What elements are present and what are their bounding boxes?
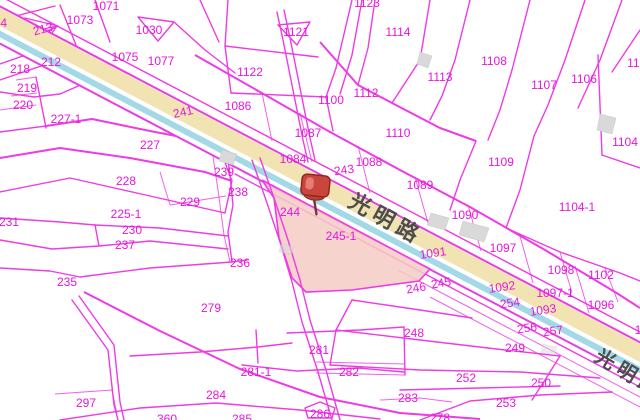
parcel-label-220: 220	[13, 98, 33, 112]
parcel-label-238: 238	[228, 185, 248, 199]
parcel-label-282: 282	[339, 365, 359, 379]
parcel-label-1088: 1088	[356, 155, 383, 169]
parcel-label-279: 279	[201, 301, 221, 315]
parcel-label-1104-1: 1104-1	[559, 200, 596, 214]
parcel-label-243: 243	[333, 162, 355, 179]
cadastral-map-svg: 光明路光明路 107110731030214213107510772122182…	[0, 0, 640, 420]
parcel-label-254: 254	[499, 295, 521, 312]
parcel-label-225-1: 225-1	[111, 207, 142, 221]
parcel-label-227: 227	[140, 138, 160, 152]
parcel-label-1075: 1075	[112, 50, 139, 64]
parcel-label-281: 281	[309, 343, 329, 357]
parcel-label-249: 249	[505, 341, 525, 355]
parcel-label-1113: 1113	[428, 70, 453, 84]
parcel-label-1108: 1108	[481, 54, 507, 68]
parcel-label-1090: 1090	[452, 208, 479, 222]
parcel-label-1097-1: 1097-1	[536, 286, 574, 300]
parcel-label-278: 278	[430, 411, 450, 420]
parcel-label-1109: 1109	[488, 155, 514, 169]
parcel-label-1096: 1096	[588, 298, 615, 312]
parcel-label-250: 250	[531, 376, 551, 390]
parcel-label-1104: 1104	[612, 135, 638, 149]
parcel-label-1077: 1077	[148, 54, 175, 68]
parcel-label-1102: 1102	[588, 268, 614, 282]
parcel-label-239: 239	[214, 165, 234, 179]
parcel-label-235: 235	[57, 275, 77, 289]
parcel-label-248: 248	[404, 326, 424, 340]
parcel-label-237: 237	[115, 238, 135, 252]
parcel-label-1112: 1112	[354, 86, 379, 100]
parcel-label-360: 360	[157, 412, 177, 420]
parcel-label-236: 236	[230, 256, 250, 270]
map-canvas[interactable]: 光明路光明路 107110731030214213107510772122182…	[0, 0, 640, 420]
parcel-label-1107: 1107	[531, 78, 557, 92]
parcel-label-281-1: 281-1	[241, 365, 272, 379]
parcel-label-1106: 1106	[571, 72, 597, 86]
parcel-label-1087: 1087	[295, 126, 322, 140]
parcel-label-297: 297	[76, 396, 96, 410]
parcel-label-1098: 1098	[548, 263, 575, 277]
parcel-label-1084: 1084	[280, 152, 307, 166]
parcel-label-283: 283	[398, 391, 418, 405]
parcel-label-1086: 1086	[225, 99, 252, 113]
parcel-label-1089: 1089	[407, 178, 434, 192]
pin-head	[300, 174, 330, 198]
parcel-label-219: 219	[17, 81, 37, 95]
parcel-label-230: 230	[122, 223, 142, 237]
parcel-label-214: 214	[0, 16, 7, 30]
parcel-label-218: 218	[10, 62, 30, 76]
parcel-label-253: 253	[496, 396, 516, 410]
parcel-label-256: 256	[516, 320, 538, 337]
parcel-label-1122: 1122	[237, 65, 263, 79]
parcel-label-1094: 1094	[635, 323, 640, 337]
parcel-label-285: 285	[232, 412, 252, 420]
parcel-label-257: 257	[542, 323, 564, 340]
parcel-label-1073: 1073	[67, 13, 94, 27]
parcel-label-1097: 1097	[490, 241, 517, 255]
parcel-label-286: 286	[310, 407, 330, 420]
parcel-label-1030: 1030	[136, 23, 163, 37]
parcel-label-229: 229	[180, 195, 200, 209]
parcel-label-1114: 1114	[386, 25, 411, 39]
parcel-label-1110: 1110	[386, 126, 411, 140]
parcel-label-1121: 1121	[283, 25, 309, 39]
parcel-label-1100: 1100	[318, 93, 344, 107]
parcel-label-284: 284	[206, 388, 226, 402]
parcel-label-1123: 1123	[354, 0, 380, 10]
parcel-label-227-1: 227-1	[51, 112, 82, 126]
parcel-label-1105: 1105	[627, 56, 640, 70]
parcel-label-228: 228	[116, 174, 136, 188]
parcel-label-252: 252	[456, 371, 476, 385]
parcel-label-245-1: 245-1	[326, 229, 357, 243]
parcel-label-244: 244	[280, 205, 300, 219]
parcel-label-231: 231	[0, 215, 19, 229]
parcel-label-1071: 1071	[93, 0, 120, 13]
parcel-label-212: 212	[41, 55, 61, 69]
